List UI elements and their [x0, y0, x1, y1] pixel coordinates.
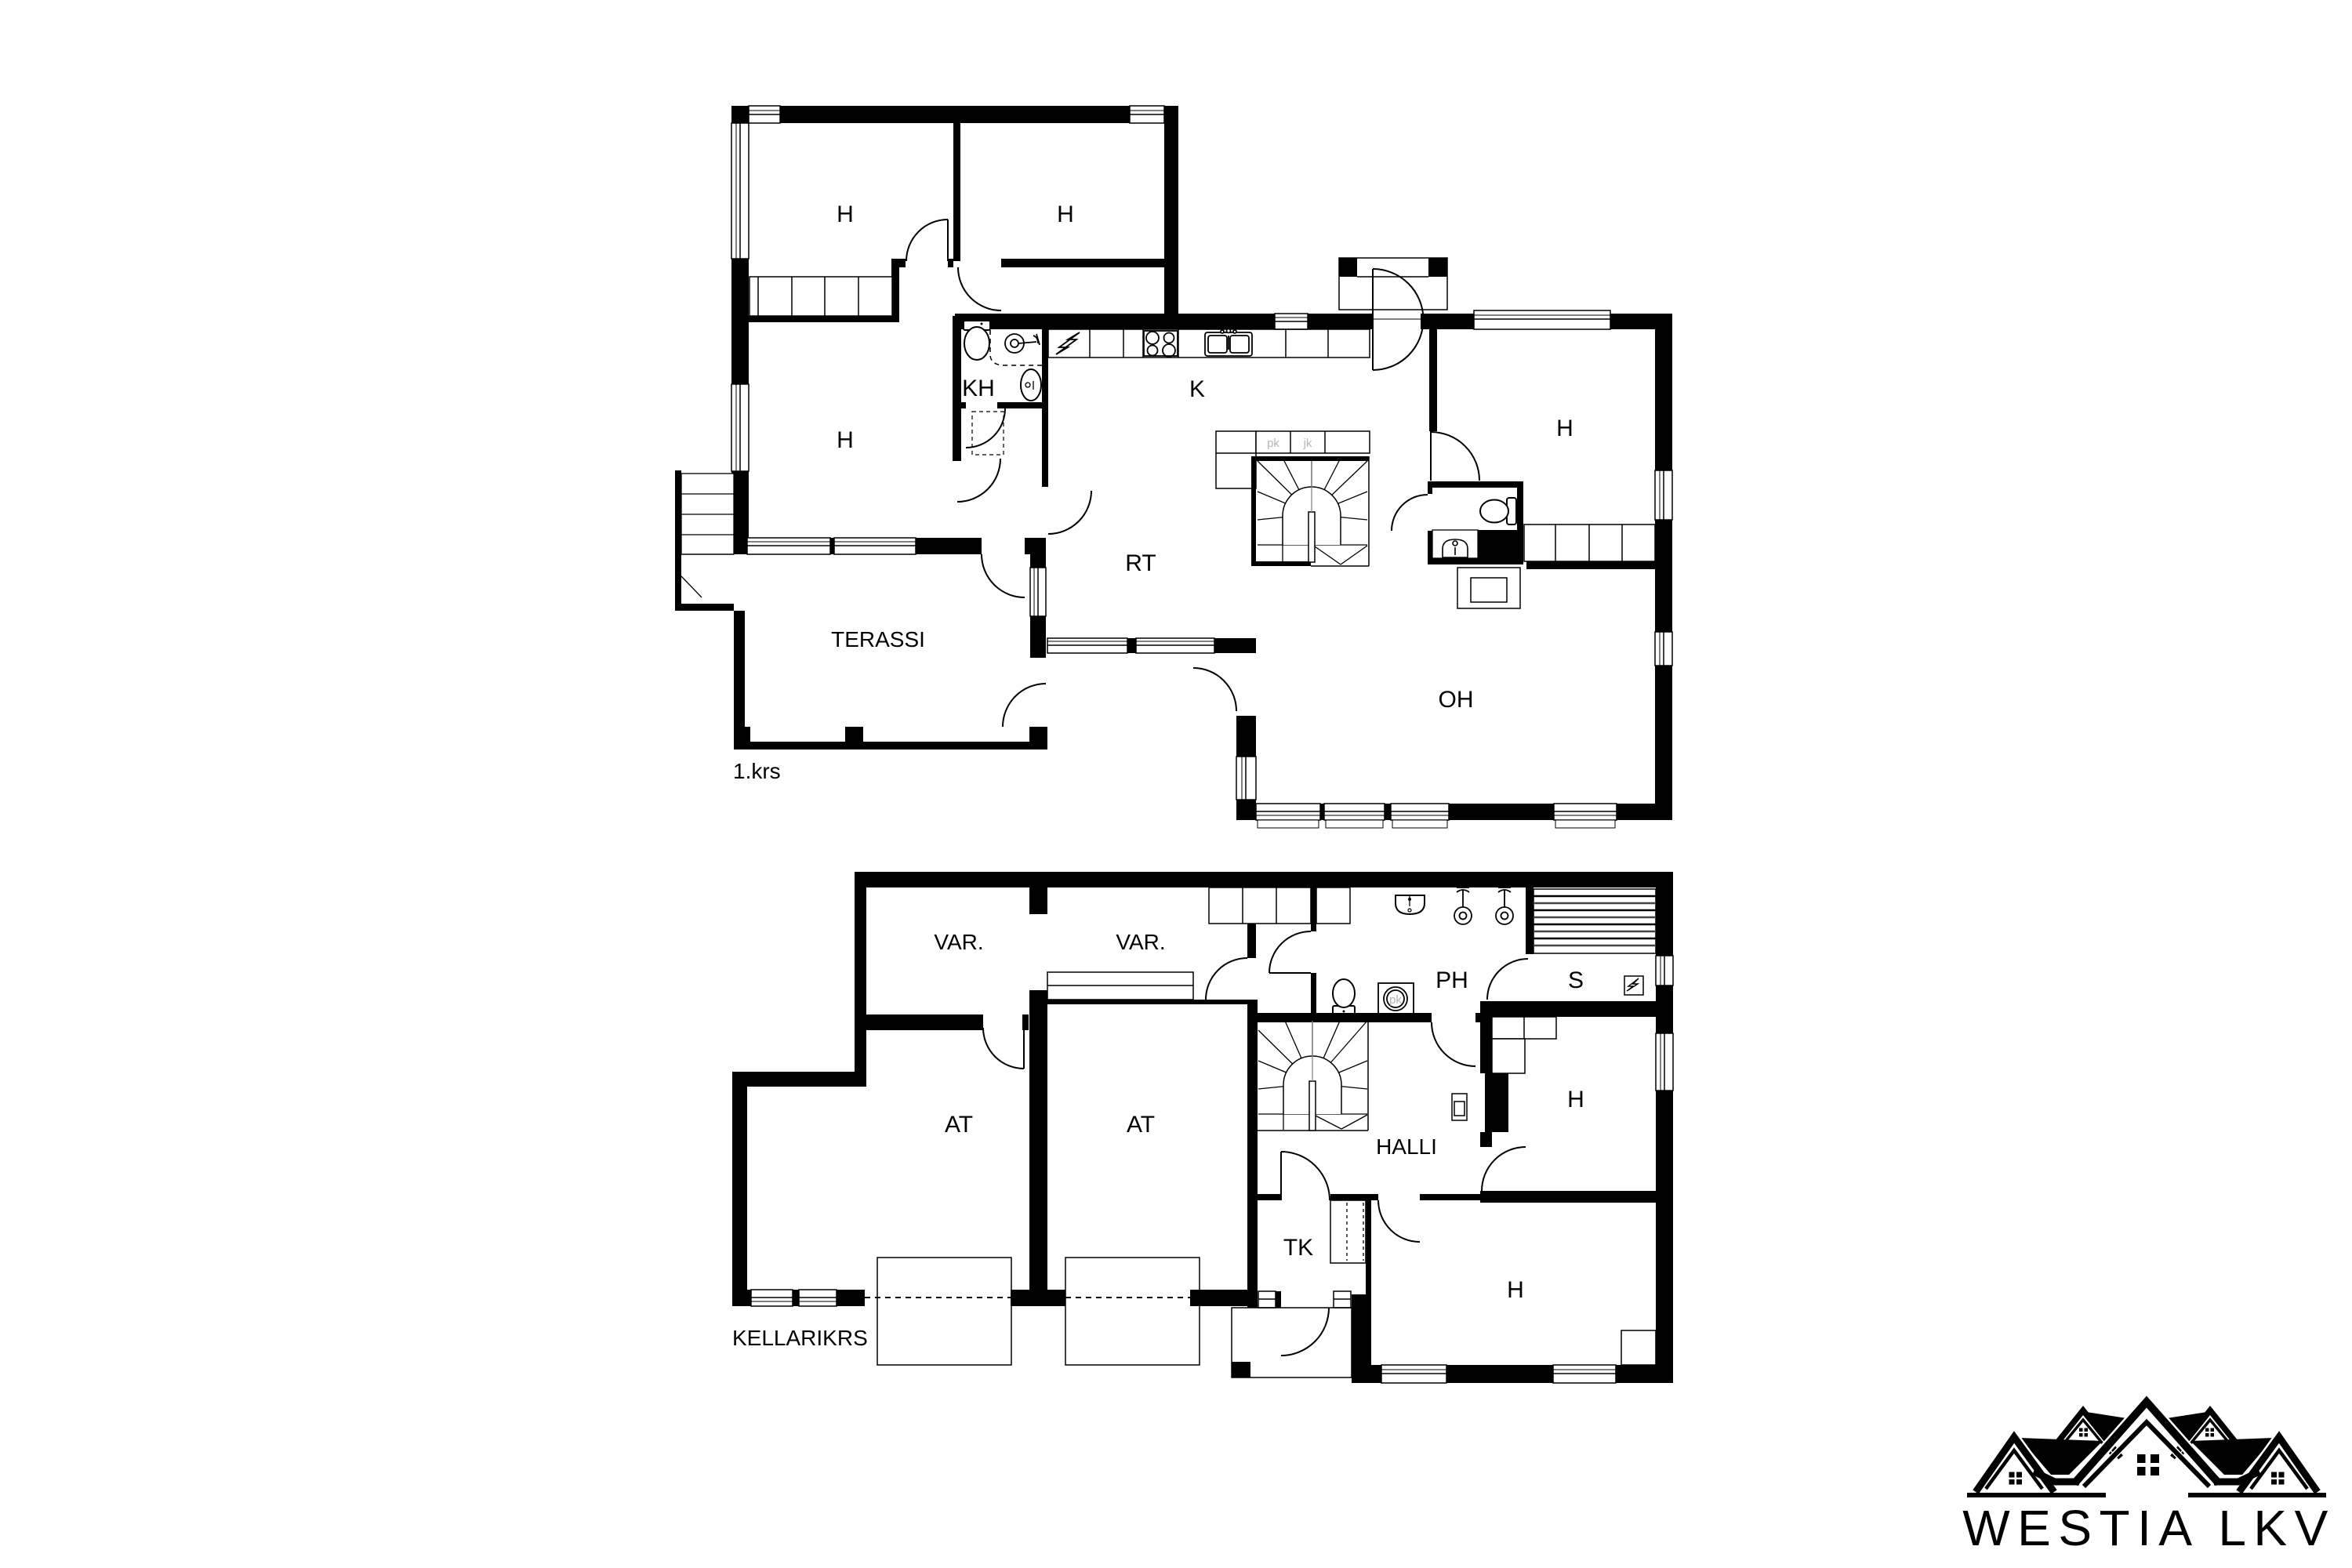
- svg-text:OH: OH: [1439, 687, 1474, 713]
- svg-text:TK: TK: [1283, 1235, 1313, 1261]
- svg-text:H: H: [837, 201, 854, 227]
- svg-text:PH: PH: [1436, 967, 1468, 993]
- svg-text:VAR.: VAR.: [1116, 930, 1165, 954]
- svg-text:RT: RT: [1125, 550, 1156, 576]
- svg-text:VAR.: VAR.: [934, 930, 983, 954]
- svg-text:WESTIA LKV: WESTIA LKV: [1962, 1500, 2336, 1556]
- svg-text:jk: jk: [1303, 437, 1312, 450]
- svg-text:TERASSI: TERASSI: [831, 627, 925, 652]
- svg-text:H: H: [1567, 1087, 1584, 1112]
- svg-text:K: K: [1189, 376, 1205, 402]
- svg-text:KELLARIKRS: KELLARIKRS: [732, 1326, 868, 1350]
- svg-text:H: H: [1556, 416, 1573, 441]
- svg-text:1.krs: 1.krs: [733, 759, 781, 783]
- svg-text:KH: KH: [962, 376, 995, 401]
- svg-text:HALLI: HALLI: [1376, 1134, 1437, 1159]
- svg-text:H: H: [1057, 201, 1074, 227]
- svg-text:AT: AT: [945, 1112, 973, 1138]
- svg-text:S: S: [1568, 967, 1584, 993]
- svg-text:H: H: [1507, 1277, 1524, 1303]
- svg-text:pk: pk: [1267, 437, 1279, 450]
- svg-text:pk: pk: [1389, 993, 1402, 1007]
- svg-text:AT: AT: [1127, 1112, 1155, 1138]
- svg-text:H: H: [837, 427, 854, 453]
